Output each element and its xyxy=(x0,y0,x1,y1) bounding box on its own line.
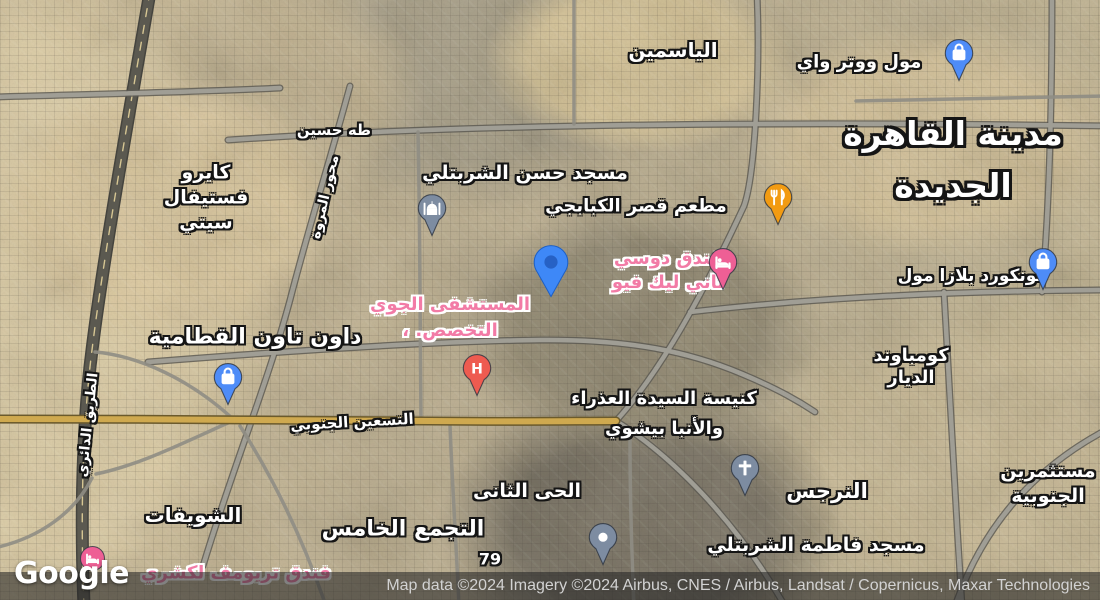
markers-layer: H xyxy=(0,0,1100,600)
virgin-mary-church-pin[interactable] xyxy=(729,453,761,497)
air-hospital-pin[interactable]: H xyxy=(461,353,493,397)
hospital-h-icon: H xyxy=(471,362,483,378)
svg-text:H: H xyxy=(471,362,483,378)
kababgi-restaurant-pin[interactable] xyxy=(762,182,794,226)
dot-icon xyxy=(598,533,607,542)
google-logo[interactable]: Google xyxy=(14,556,129,591)
downtown-katameya-pin[interactable] xyxy=(212,362,244,406)
hassan-sharbatly-mosque-pin[interactable] xyxy=(416,193,448,237)
location-pin-icon xyxy=(532,244,570,298)
waterway-mall-pin[interactable] xyxy=(943,38,975,82)
fatma-sharbatly-mosque-pin[interactable] xyxy=(587,522,619,566)
concord-plaza-pin[interactable] xyxy=(1027,247,1059,291)
map-canvas[interactable]: الياسمينكايروفستيفالسيتيداون تاون القطام… xyxy=(0,0,1100,600)
attribution-text: Map data ©2024 Imagery ©2024 Airbus, CNE… xyxy=(386,577,1090,595)
dusit-thani-hotel-pin[interactable] xyxy=(707,247,739,291)
attribution-bar: Map data ©2024 Imagery ©2024 Airbus, CNE… xyxy=(0,572,1100,600)
dropped-location-pin[interactable] xyxy=(532,244,570,298)
